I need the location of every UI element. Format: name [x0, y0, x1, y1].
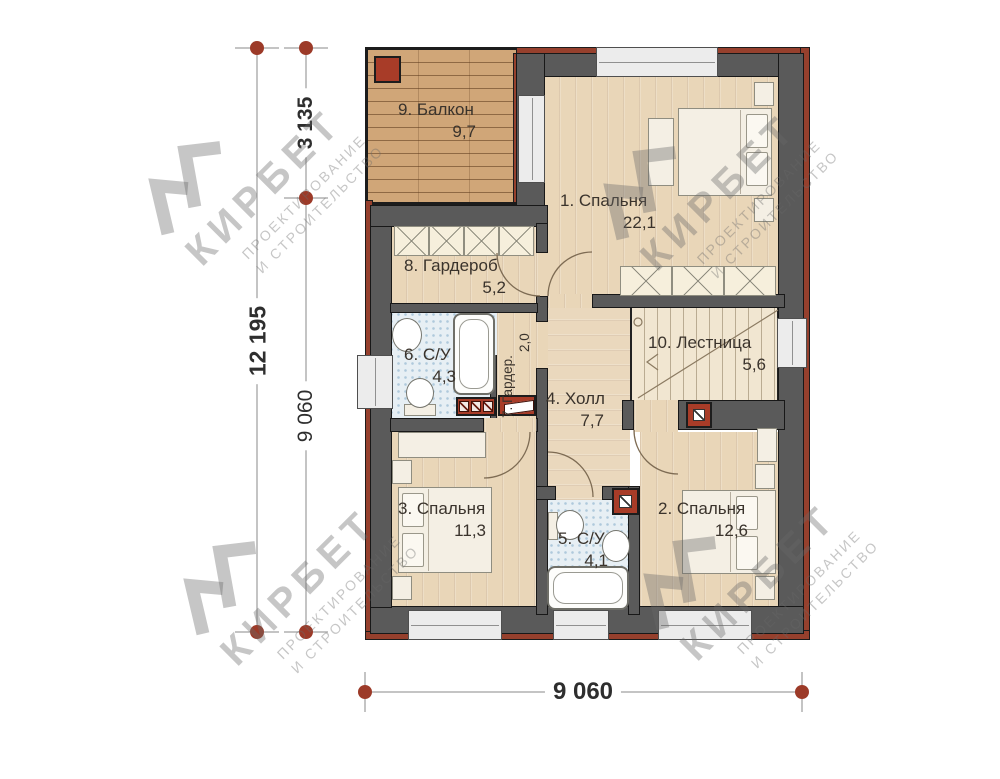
- balcony-door: [518, 95, 545, 183]
- dimension-height-total: 12 195: [244, 298, 273, 384]
- window-bedroom1-north: [596, 47, 718, 77]
- room-label-bathroom5: 5. С/У 4,1: [558, 528, 610, 572]
- nightstand: [754, 82, 774, 106]
- kirbet-logo-icon: [158, 521, 281, 644]
- doorway-wardrobe8: [536, 253, 548, 296]
- cabinet-bedroom2: [757, 428, 777, 462]
- blanket-line: [740, 110, 741, 194]
- window-bathroom5-south: [553, 610, 609, 640]
- room-area: 5,2: [404, 277, 508, 299]
- room-name: 4. Холл: [546, 388, 610, 410]
- dimension-height-top: 3 135: [293, 89, 319, 158]
- nightstand: [755, 464, 775, 489]
- dimension-width-bottom: 9 060: [545, 677, 621, 707]
- bench-bedroom1: [648, 118, 674, 186]
- doorway-bedroom1: [548, 294, 592, 308]
- room-label-balcony: 9. Балкон 9,7: [398, 99, 484, 143]
- nightstand: [392, 576, 412, 600]
- room-area: 7,7: [546, 410, 610, 432]
- wall-under-balcony: [370, 205, 548, 227]
- room-label-stairs: 10. Лестница 5,6: [648, 332, 770, 376]
- pillow: [746, 114, 768, 148]
- vent-cell: [483, 401, 493, 412]
- room-area: 9,7: [398, 121, 484, 143]
- wardrobe-cell: [464, 226, 499, 256]
- wall-bath5-north-a: [536, 486, 556, 500]
- window-stairs-east: [777, 318, 807, 368]
- vent-block-bathroom5: [612, 488, 639, 515]
- room-name: 1. Спальня: [560, 190, 666, 212]
- dresser-bedroom3: [398, 432, 486, 458]
- room-label-hall: 4. Холл 7,7: [546, 388, 610, 432]
- wall-hall-west-a: [536, 223, 548, 253]
- vent-block-stairs: [686, 402, 712, 428]
- room-label-bedroom1: 1. Спальня 22,1: [560, 190, 666, 234]
- kirbet-logo-icon: [123, 121, 246, 244]
- wall-bedroom1-south-b: [592, 294, 785, 308]
- nightstand: [754, 198, 774, 222]
- room-area: 5,6: [648, 354, 770, 376]
- wardrobe-unit-room8: [394, 226, 534, 256]
- wardrobe-cell: [724, 266, 776, 296]
- room-area: 11,3: [398, 520, 490, 542]
- floor-plan-canvas: 1. Спальня 22,1 2. Спальня 12,6 3. Спаль…: [0, 0, 1000, 779]
- vent-cell: [471, 401, 481, 412]
- watermark-brand: КИРБЕТ: [177, 65, 387, 275]
- dimension-height-main: 9 060: [293, 382, 319, 451]
- balcony-column: [374, 56, 401, 83]
- room-name: 5. С/У: [558, 528, 610, 550]
- doorway-bathroom5: [556, 486, 602, 500]
- room-label-bedroom3: 3. Спальня 11,3: [398, 498, 490, 542]
- wardrobe-cell: [394, 226, 429, 256]
- wardrobe-unit-bedroom1: [620, 266, 776, 296]
- room-label-bedroom2: 2. Спальня 12,6: [658, 498, 752, 542]
- doorway-wardrobe7: [536, 322, 548, 368]
- room-name: 8. Гардероб: [404, 255, 508, 277]
- wall-bedroom3-north-a: [390, 418, 484, 432]
- wardrobe-cell: [672, 266, 724, 296]
- room-name: 6. С/У: [404, 344, 458, 366]
- room-label-wardrobe8: 8. Гардероб 5,2: [404, 255, 508, 299]
- room-name: 10. Лестница: [648, 332, 770, 354]
- doorway-bedroom2: [634, 400, 678, 432]
- room-name: 9. Балкон: [398, 99, 484, 121]
- wardrobe-cell: [499, 226, 534, 256]
- room-label-wardrobe7-name: 7. Гардер.: [500, 312, 516, 418]
- room-area: 22,1: [560, 212, 666, 234]
- room-area: 12,6: [658, 520, 752, 542]
- window-bathroom6-west: [357, 355, 393, 409]
- room-label-bathroom6: 6. С/У 4,3: [404, 344, 458, 388]
- window-bedroom2-south: [658, 610, 752, 640]
- doorway-bedroom3: [484, 418, 536, 432]
- room-area: 4,1: [558, 550, 610, 572]
- vent-cell: [459, 401, 469, 412]
- bathtub-bathroom6: [453, 313, 495, 395]
- pillow: [746, 152, 768, 186]
- vent-block-bathroom6: [456, 397, 496, 416]
- room-area: 4,3: [404, 366, 458, 388]
- wall-stairs-south-a: [622, 400, 634, 430]
- room-name: 2. Спальня: [658, 498, 752, 520]
- nightstand: [755, 576, 775, 600]
- wardrobe-cell: [620, 266, 672, 296]
- window-bedroom3-south: [408, 610, 502, 640]
- nightstand: [392, 460, 412, 484]
- bathtub-bathroom5: [547, 566, 629, 610]
- room-name: 3. Спальня: [398, 498, 490, 520]
- room-label-wardrobe7-area: 2,0: [517, 312, 533, 352]
- wardrobe-cell: [429, 226, 464, 256]
